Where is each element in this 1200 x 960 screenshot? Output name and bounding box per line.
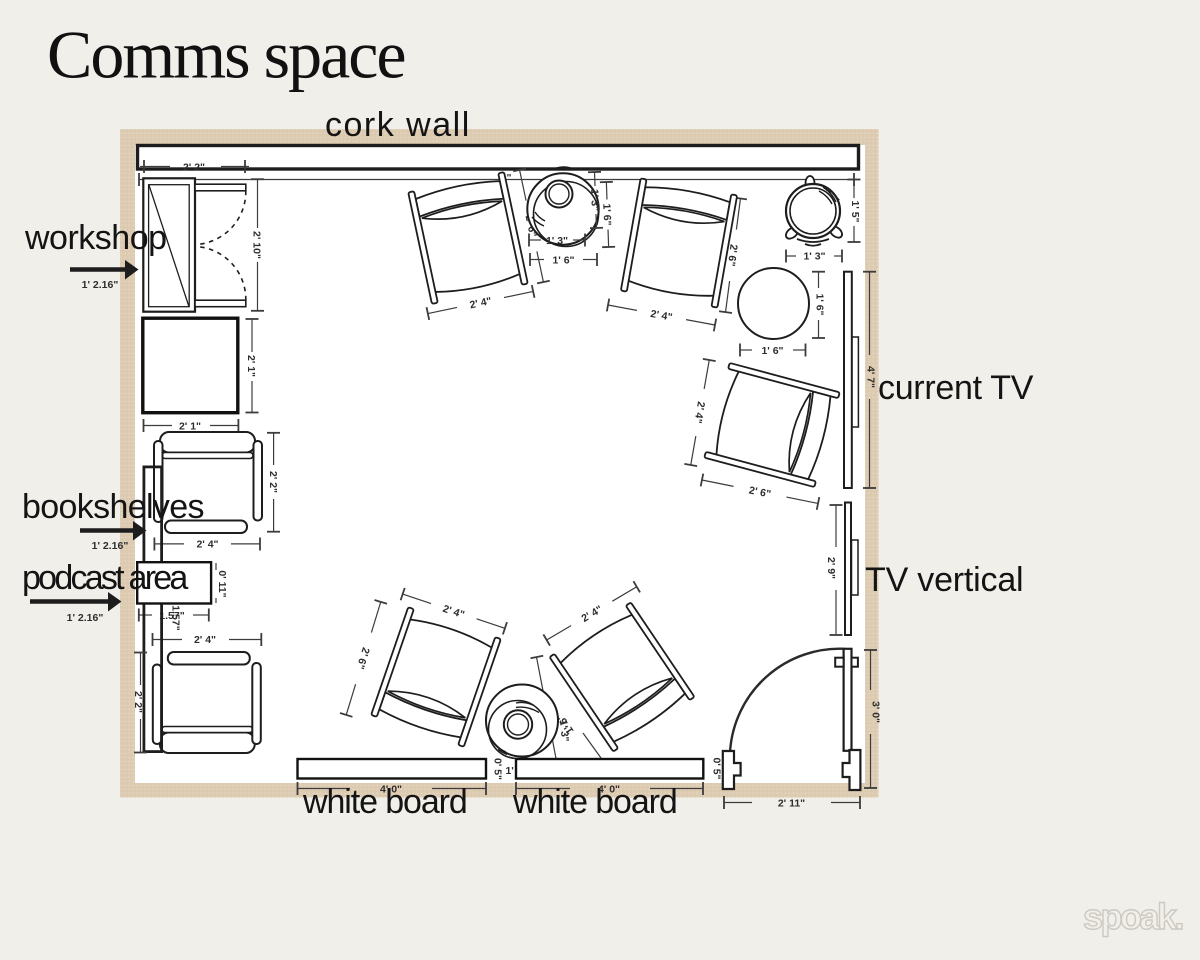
- svg-text:bookshelves: bookshelves: [22, 488, 204, 526]
- svg-text:podcast area: podcast area: [22, 559, 188, 597]
- svg-text:2' 9": 2' 9": [825, 557, 837, 579]
- svg-text:white board: white board: [512, 783, 677, 821]
- svg-text:": ": [507, 172, 512, 184]
- svg-text:1' 2.16": 1' 2.16": [92, 540, 129, 552]
- svg-text:1' 6": 1' 6": [600, 203, 613, 225]
- svg-text:1' 6": 1' 6": [552, 255, 574, 267]
- svg-text:spoak.: spoak.: [1083, 896, 1183, 937]
- svg-text:1' 2.16": 1' 2.16": [82, 279, 119, 291]
- svg-text:3' 0": 3' 0": [870, 701, 882, 723]
- svg-text:workshop: workshop: [24, 219, 167, 257]
- svg-text:1' 3": 1' 3": [803, 251, 825, 263]
- svg-text:2' 1": 2' 1": [179, 421, 201, 433]
- svg-text:1' 5": 1' 5": [849, 200, 861, 222]
- svg-text:white board: white board: [302, 783, 467, 821]
- svg-text:1' 6": 1' 6": [814, 293, 826, 315]
- svg-text:1' 6": 1' 6": [761, 345, 783, 357]
- svg-text:2' 10": 2' 10": [251, 231, 263, 259]
- svg-text:TV vertical: TV vertical: [865, 561, 1023, 599]
- svg-text:1.57": 1.57": [170, 605, 182, 630]
- svg-text:2' 4": 2' 4": [194, 634, 216, 646]
- svg-text:4' 7": 4' 7": [865, 366, 877, 388]
- svg-text:Comms space: Comms space: [47, 17, 405, 93]
- svg-text:cork wall: cork wall: [325, 106, 471, 144]
- svg-text:current TV: current TV: [878, 369, 1034, 407]
- svg-text:1' 3": 1' 3": [557, 719, 571, 742]
- svg-text:2' 4": 2' 4": [196, 539, 218, 551]
- svg-text:1' 2.16": 1' 2.16": [67, 612, 104, 624]
- svg-text:2' 2": 2' 2": [267, 471, 279, 493]
- svg-text:0' 5": 0' 5": [711, 757, 723, 779]
- svg-text:2' 2": 2' 2": [183, 162, 205, 174]
- svg-text:0' 11": 0' 11": [216, 570, 228, 597]
- svg-text:2' 11": 2' 11": [778, 798, 805, 810]
- svg-text:2' 1": 2' 1": [245, 355, 257, 377]
- svg-text:0' 5": 0' 5": [492, 758, 504, 780]
- svg-text:1' 3": 1' 3": [588, 189, 601, 211]
- svg-text:2' 2": 2' 2": [132, 691, 144, 713]
- svg-text:1' 3": 1' 3": [546, 235, 568, 247]
